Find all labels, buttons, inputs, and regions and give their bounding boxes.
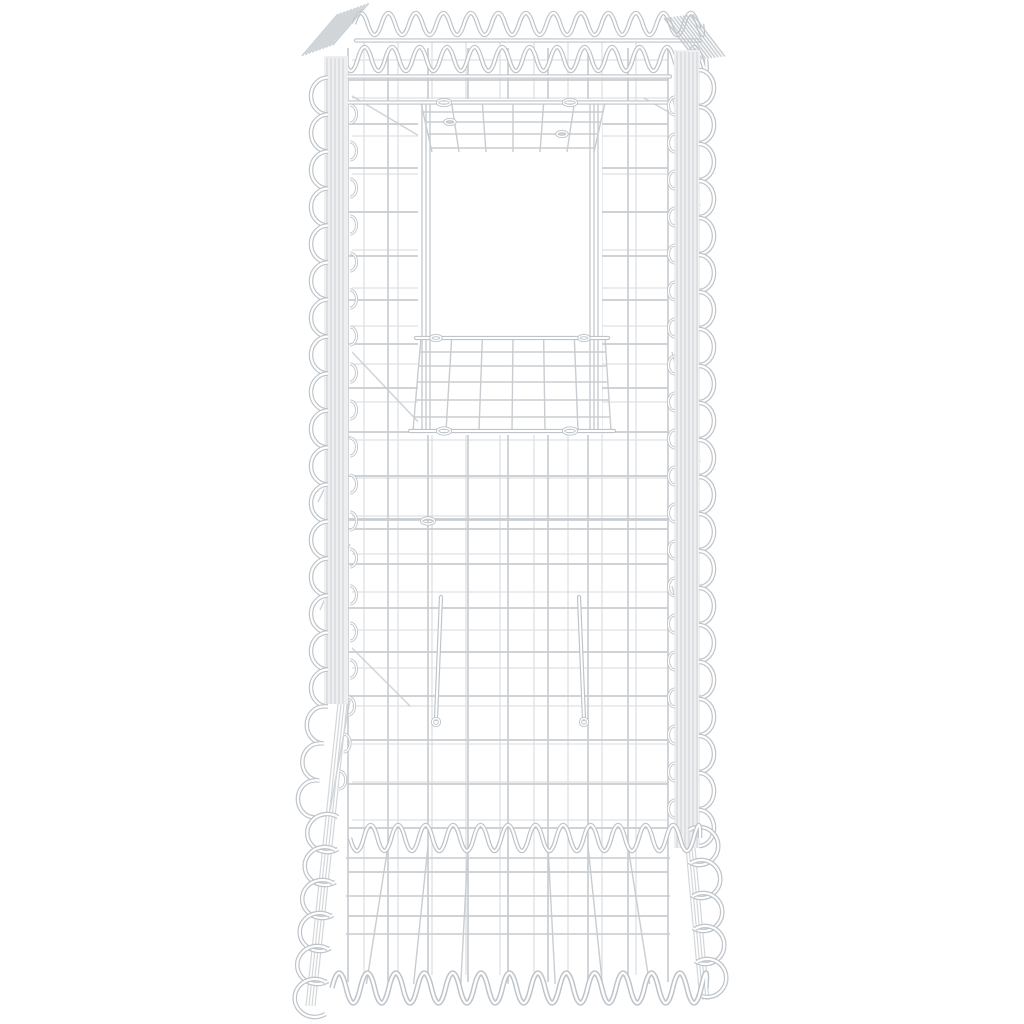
post-shaft-opening: [418, 99, 602, 435]
corner-spiral-left-top: [302, 3, 369, 56]
right-edge-column: [674, 50, 709, 1000]
product-image: [0, 0, 1024, 1024]
gabion-basket-photo: [0, 0, 1024, 1024]
